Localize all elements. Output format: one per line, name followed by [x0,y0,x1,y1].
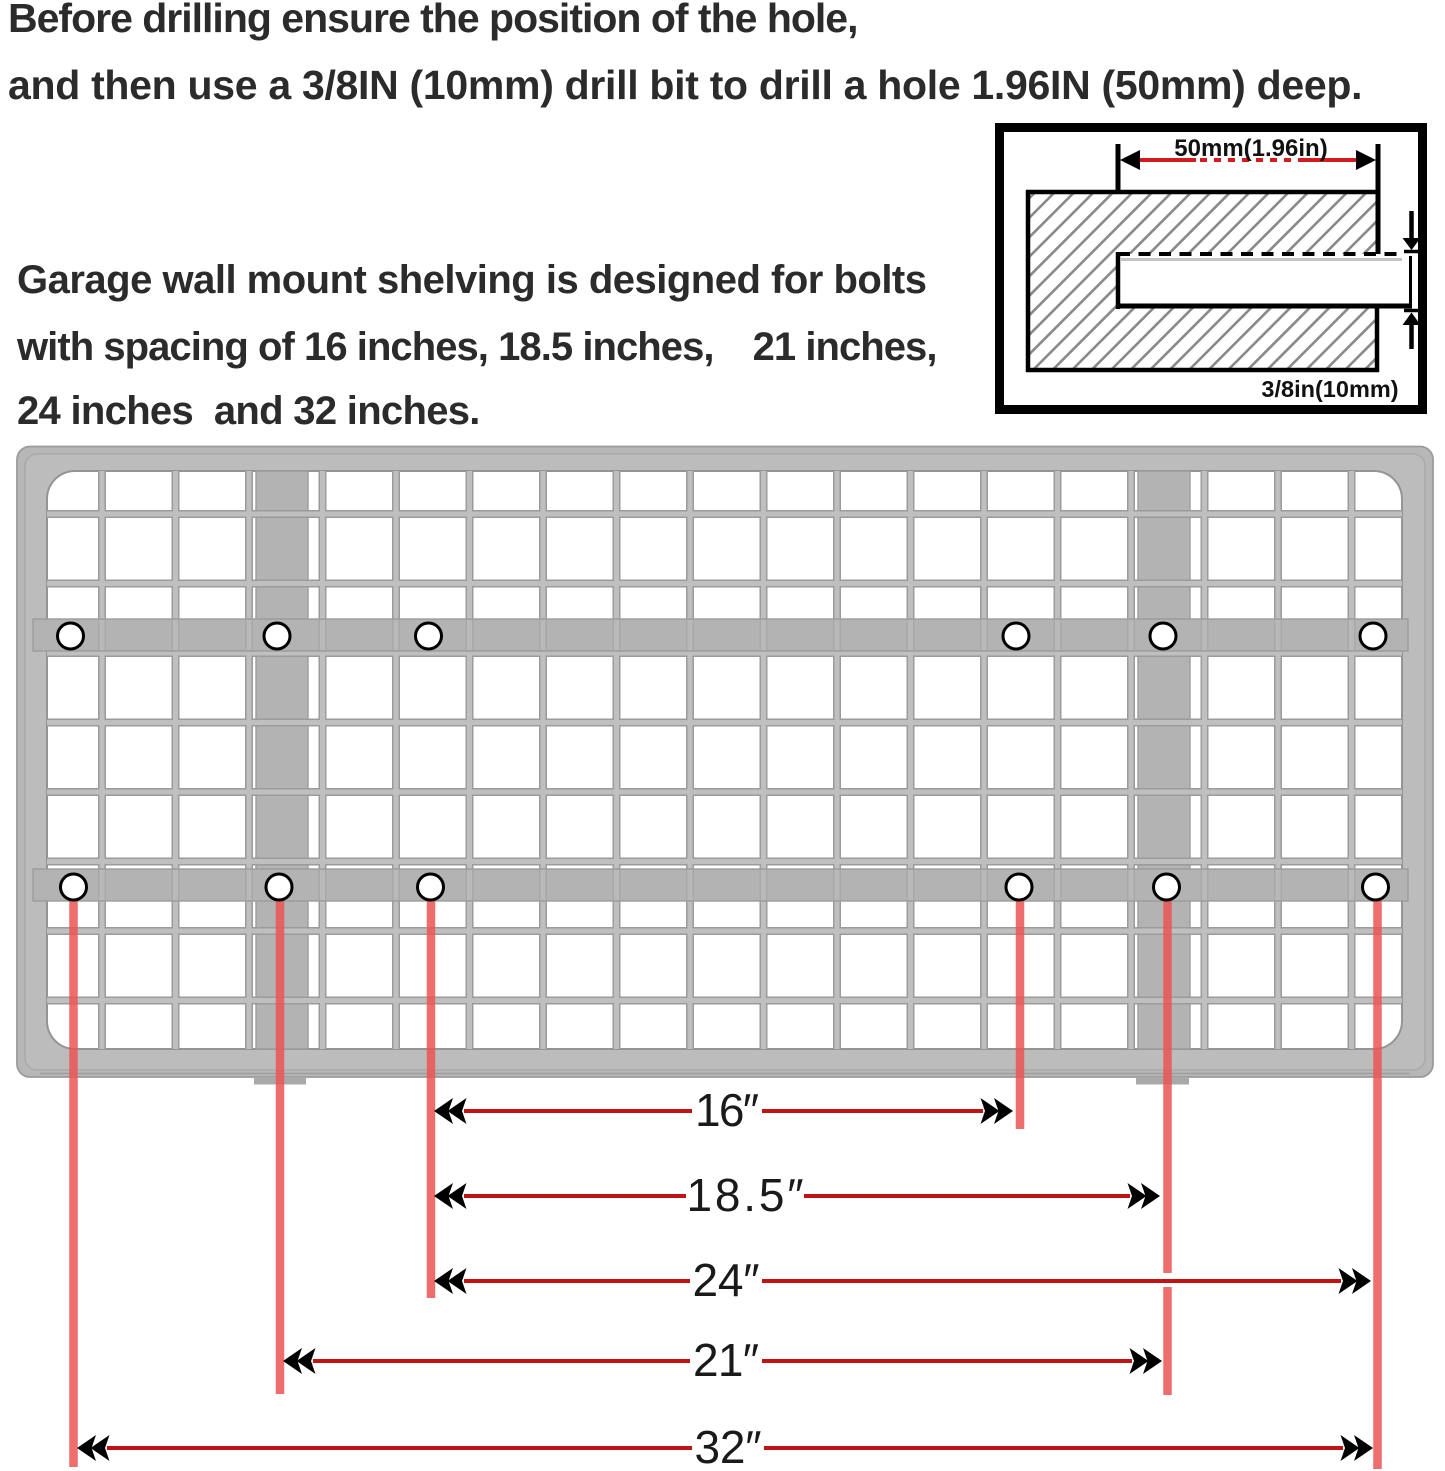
svg-text:18.5″: 18.5″ [687,1169,804,1221]
svg-text:50mm(1.96in): 50mm(1.96in) [1174,135,1327,162]
svg-text:16″: 16″ [695,1084,759,1136]
svg-text:3/8in(10mm): 3/8in(10mm) [1261,376,1398,402]
svg-text:21″: 21″ [693,1334,759,1386]
svg-text:24″: 24″ [693,1254,760,1306]
svg-text:32″: 32″ [695,1421,762,1471]
